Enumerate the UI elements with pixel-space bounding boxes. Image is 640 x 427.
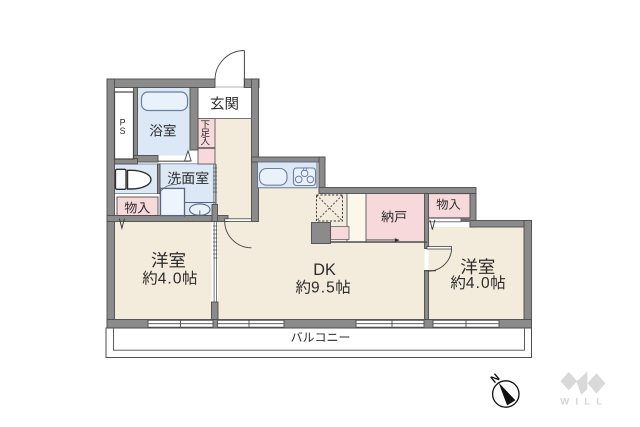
svg-text:S: S: [120, 126, 126, 136]
svg-text:WILL: WILL: [560, 397, 608, 408]
svg-text:4.0: 4.0: [158, 271, 183, 288]
svg-text:4.0: 4.0: [466, 275, 491, 292]
svg-text:9.5: 9.5: [311, 280, 336, 297]
svg-text:DK: DK: [313, 261, 336, 279]
